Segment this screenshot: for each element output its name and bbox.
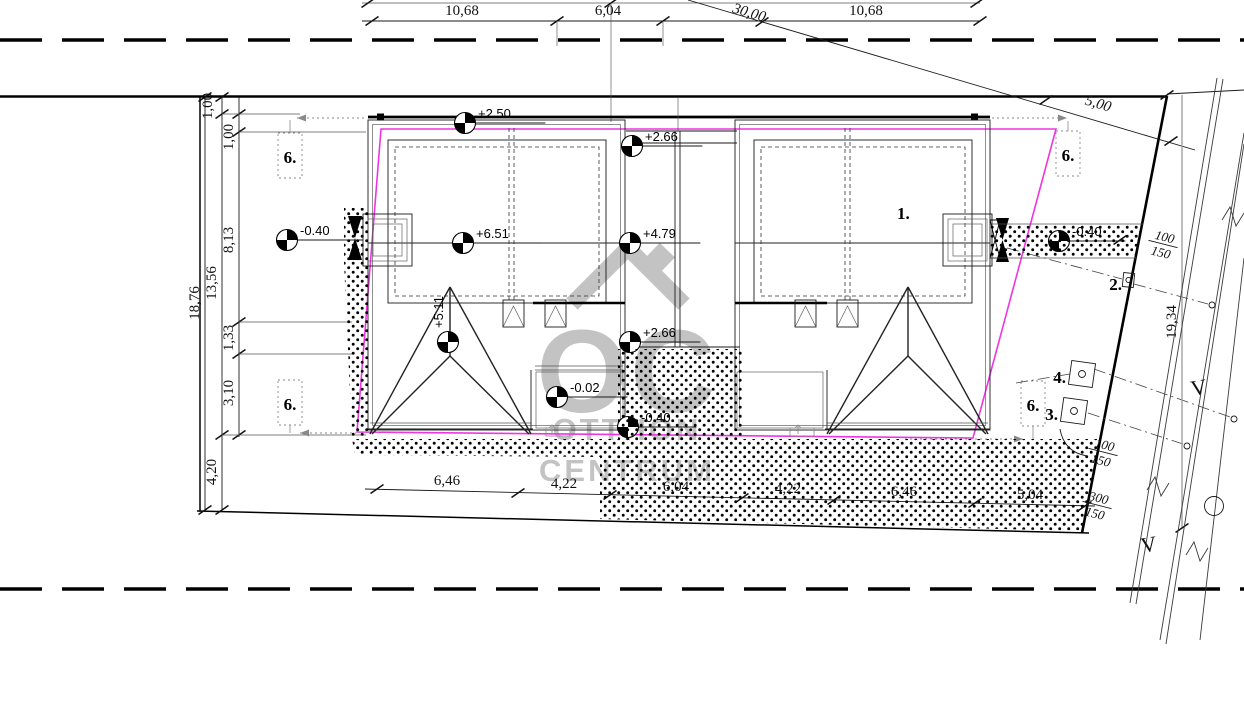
elevation-marker: +5.11 bbox=[431, 296, 459, 352]
dim-left-2: 1,00 bbox=[221, 124, 237, 150]
dimension-chain-left: 18,76 13,56 4,20 1,00 1,00 8,13 1,33 3,1… bbox=[187, 93, 366, 515]
dim-left-3: 8,13 bbox=[221, 227, 237, 253]
water-pipe-label-1: V bbox=[1189, 374, 1209, 401]
elevation-value: +6.51 bbox=[476, 226, 509, 241]
dim-left-total: 18,76 bbox=[187, 286, 203, 320]
corner-label-se: 6. bbox=[1027, 396, 1040, 415]
utility-label-2: 2. bbox=[1109, 275, 1122, 294]
roof-wing-right bbox=[825, 287, 990, 434]
dim-top-2: 6,04 bbox=[595, 3, 622, 19]
utility-label-4: 4. bbox=[1053, 368, 1066, 387]
dim-left-front: 4,20 bbox=[204, 459, 220, 485]
site-plan-drawing: OC OTTHON CENTRUM 10,68 6,04 10,68 bbox=[0, 0, 1244, 724]
elevation-value: -0.02 bbox=[570, 380, 600, 395]
manhole-icon bbox=[1205, 497, 1224, 516]
dim-left-1: 1,00 bbox=[200, 93, 216, 119]
dim-left-sub: 13,56 bbox=[204, 266, 220, 300]
dim-top-1: 10,68 bbox=[445, 3, 479, 19]
water-pipe-label-2: V bbox=[1139, 531, 1159, 558]
house-number-label: 1. bbox=[897, 204, 910, 223]
elevation-value: +2.66 bbox=[643, 325, 676, 340]
dim-bottom-2: 4,22 bbox=[551, 476, 577, 492]
dim-bottom-1: 6,46 bbox=[434, 473, 461, 489]
pipe-break-icon bbox=[1186, 542, 1208, 561]
corner-label-ne: 6. bbox=[1062, 146, 1075, 165]
elevation-value: +5.11 bbox=[431, 296, 446, 328]
entry-recess-right bbox=[943, 214, 992, 266]
site-plan-page: OC OTTHON CENTRUM 10,68 6,04 10,68 bbox=[0, 0, 1244, 724]
building-right: 1. bbox=[735, 120, 1009, 436]
pipe-break-icon bbox=[1222, 207, 1244, 226]
dimension-diagonal: 30,00 5,00 bbox=[688, 0, 1195, 150]
dim-left-4: 1,33 bbox=[221, 325, 237, 351]
elevation-value: +2.66 bbox=[645, 129, 678, 144]
utility-label-3: 3. bbox=[1045, 405, 1058, 424]
elevation-value: +4.79 bbox=[643, 226, 676, 241]
elevation-value: +2.50 bbox=[478, 106, 511, 121]
elevation-value: -0.40 bbox=[300, 223, 330, 238]
dim-diag-30: 30,00 bbox=[730, 0, 768, 25]
pipe-size-fraction-1: 100 150 bbox=[1145, 226, 1182, 263]
corner-label-sw: 6. bbox=[284, 395, 297, 414]
dim-left-5: 3,10 bbox=[221, 380, 237, 406]
elevation-marker: +6.51 bbox=[453, 226, 542, 254]
dim-top-3: 10,68 bbox=[849, 3, 883, 19]
terrace-right bbox=[737, 372, 823, 436]
utility-pipes: 19,34 V V 100 150 100 150 300 150 bbox=[1079, 78, 1244, 644]
corner-label-nw: 6. bbox=[284, 148, 297, 167]
utility-connections: 2. 4. 3. bbox=[1007, 248, 1237, 456]
dim-right-depth: 19,34 bbox=[1164, 305, 1180, 339]
